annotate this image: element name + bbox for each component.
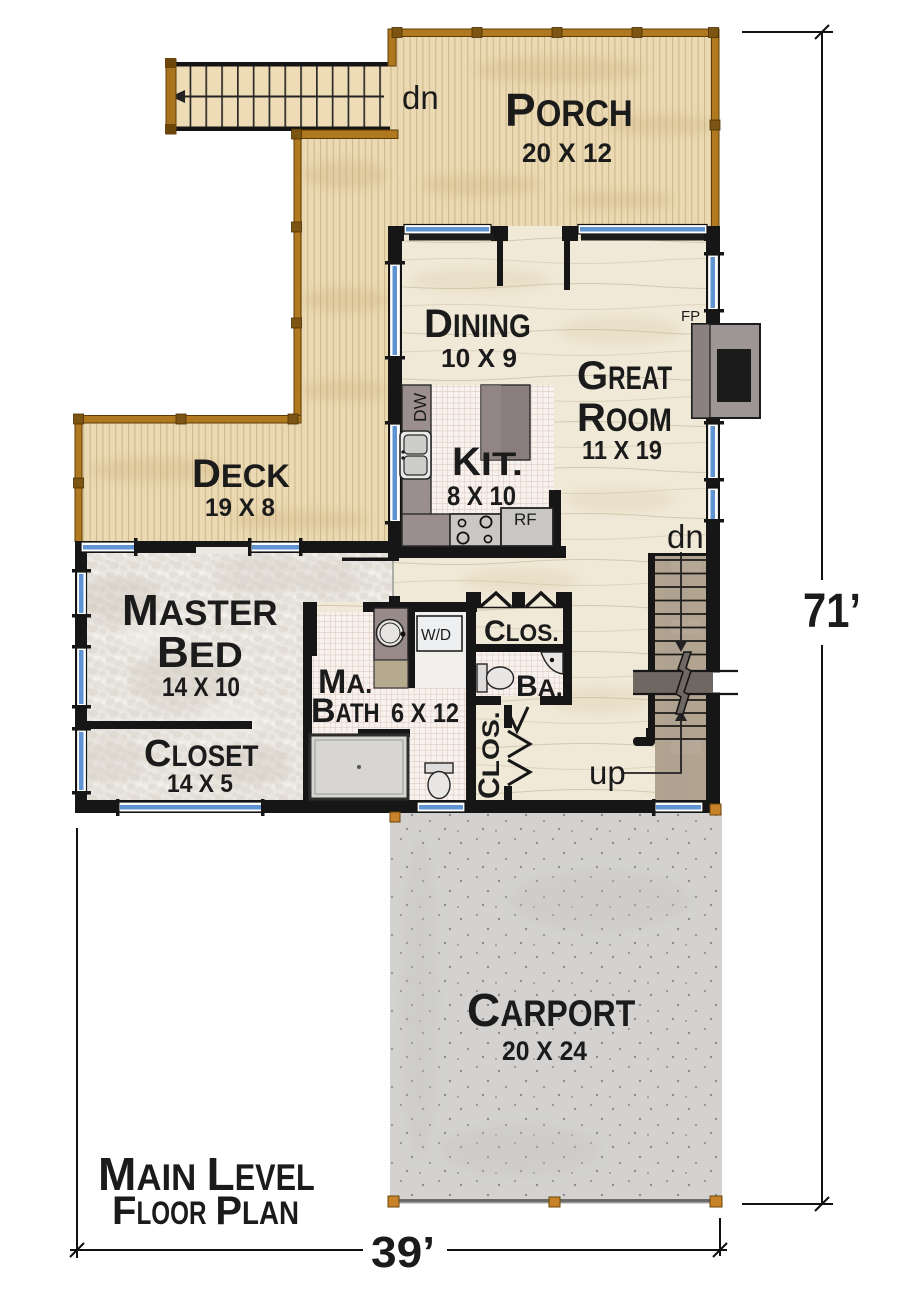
svg-text:CLOS.: CLOS. — [484, 615, 559, 648]
svg-text:6 X 12: 6 X 12 — [391, 698, 459, 728]
svg-text:CLOSET: CLOSET — [144, 733, 258, 775]
svg-text:dn: dn — [402, 79, 439, 116]
svg-text:BA.: BA. — [516, 670, 563, 703]
svg-text:W/D: W/D — [421, 627, 451, 644]
svg-text:KIT.: KIT. — [452, 440, 523, 484]
svg-text:ROOM: ROOM — [577, 396, 672, 440]
svg-text:FLOOR PLAN: FLOOR PLAN — [112, 1189, 299, 1233]
svg-text:DINING: DINING — [424, 302, 531, 346]
svg-text:RF: RF — [514, 510, 537, 529]
svg-text:BATH: BATH — [311, 692, 380, 730]
svg-text:14 X 10: 14 X 10 — [162, 672, 240, 702]
svg-text:20 X 12: 20 X 12 — [522, 138, 612, 168]
svg-text:10 X 9: 10 X 9 — [441, 343, 517, 373]
svg-text:14 X 5: 14 X 5 — [167, 770, 233, 798]
svg-text:11 X 19: 11 X 19 — [582, 435, 662, 465]
svg-text:MASTER: MASTER — [122, 586, 278, 635]
svg-text:BED: BED — [157, 628, 243, 677]
svg-text:CLOS.: CLOS. — [473, 711, 506, 799]
svg-text:39’: 39’ — [371, 1228, 435, 1277]
svg-text:19 X 8: 19 X 8 — [205, 494, 275, 522]
svg-text:GREAT: GREAT — [577, 354, 672, 398]
svg-text:71’: 71’ — [803, 585, 861, 638]
svg-text:20 X 24: 20 X 24 — [502, 1036, 587, 1066]
svg-text:8 X 10: 8 X 10 — [447, 481, 516, 511]
svg-text:FP: FP — [681, 308, 700, 325]
svg-text:DECK: DECK — [192, 452, 290, 496]
svg-text:dn: dn — [667, 518, 704, 555]
svg-text:up: up — [589, 754, 626, 791]
svg-text:DW: DW — [410, 392, 430, 422]
